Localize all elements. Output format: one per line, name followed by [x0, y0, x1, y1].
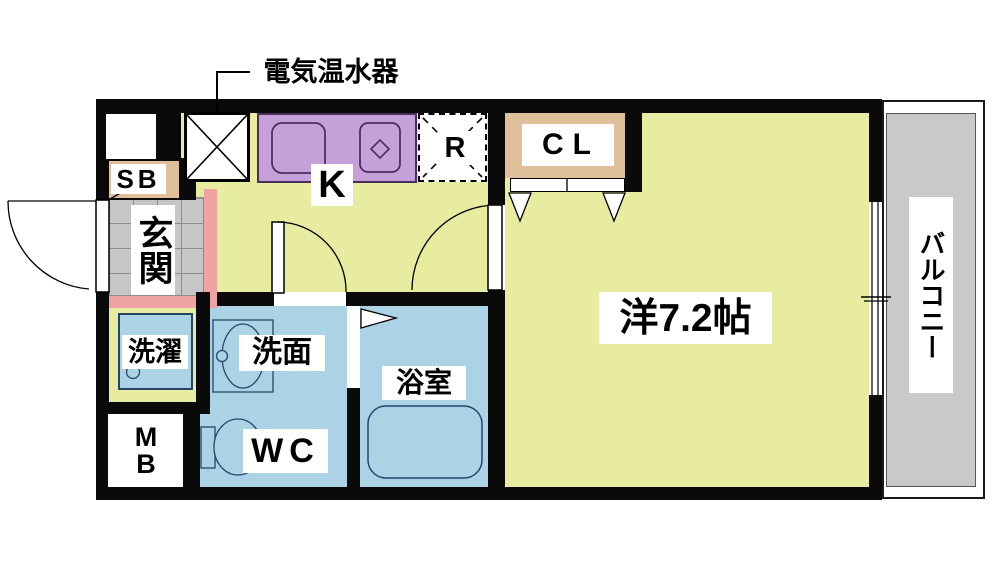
- wall-closet-stub: [625, 113, 642, 192]
- entrance-step-vertical: [204, 189, 217, 308]
- water-heater-label: 電気温水器: [250, 56, 412, 88]
- closet-label: CL: [522, 124, 614, 166]
- bathroom-door-opening: [347, 306, 360, 388]
- wall-laundry-washroom: [196, 292, 210, 404]
- wall-kitchen-wet-left: [217, 292, 274, 306]
- closet-door-track: [510, 178, 625, 192]
- wall-top: [96, 99, 882, 113]
- wall-laundry-bottom: [96, 402, 210, 414]
- balcony-label: バルコニー: [909, 197, 953, 393]
- meter-box-line-b: B: [136, 451, 156, 478]
- balcony-window-opening: [869, 202, 882, 395]
- kitchen-label: K: [311, 164, 353, 206]
- fridge-label: R: [438, 131, 472, 165]
- entrance-door-opening: [96, 200, 109, 292]
- wall-washroom-bath-top: [347, 292, 360, 306]
- floor-plan: 電気温水器 K R CL 洋7.2帖 バルコニー 玄関 SB 洗濯 洗面 WC …: [0, 0, 1000, 562]
- wc-label: WC: [243, 429, 328, 473]
- entrance-door-arc: [8, 201, 89, 289]
- mainroom-door-opening: [488, 205, 505, 290]
- main-room-label: 洋7.2帖: [599, 292, 772, 344]
- pipe-space-box: [106, 114, 156, 159]
- laundry-label: 洗濯: [122, 335, 188, 369]
- wall-right-lower: [869, 395, 882, 487]
- washroom-door-opening: [274, 292, 346, 306]
- wall-kitchen-mainroom-upper: [488, 113, 505, 205]
- bathroom-label: 浴室: [382, 366, 466, 400]
- wall-bottom: [96, 487, 882, 500]
- meter-box-label: M B: [118, 420, 174, 482]
- wall-kitchen-wet-right: [346, 292, 488, 306]
- meter-box-line-m: M: [135, 424, 158, 451]
- wall-meterbox-right: [183, 414, 200, 487]
- wall-right-upper: [869, 113, 882, 202]
- entrance-label: 玄関: [131, 205, 175, 295]
- wall-washroom-bath-lower: [347, 388, 360, 487]
- shoe-box-label: SB: [111, 164, 166, 194]
- washroom-label: 洗面: [239, 335, 325, 371]
- water-heater-box: [184, 112, 250, 182]
- wall-kitchen-mainroom-lower: [488, 290, 505, 487]
